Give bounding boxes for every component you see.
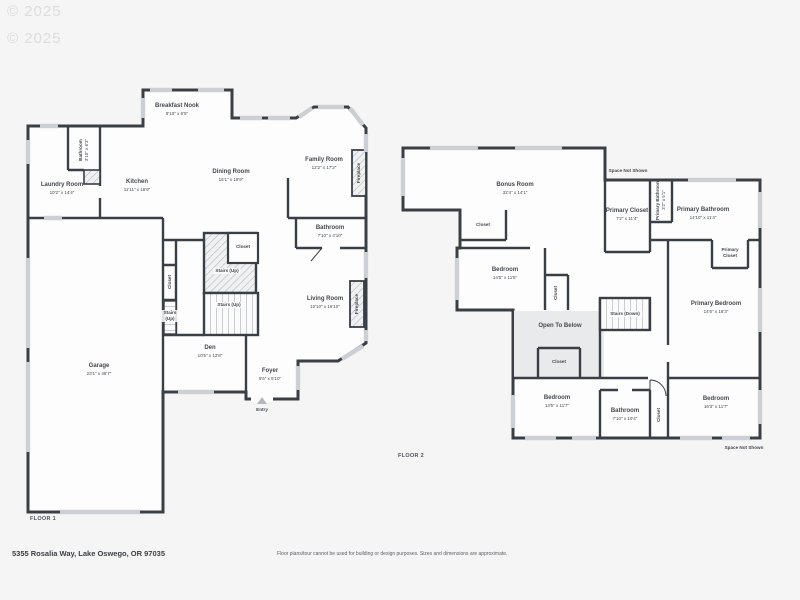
room-label-fireplace-living: Fireplace <box>354 294 360 314</box>
room-label-closet-mid: Closet <box>553 286 559 300</box>
room-label-entry: Entry <box>256 407 268 413</box>
room-label-primary-bathroom-small: Primary Bathroom3'2" x 5'1" <box>655 180 667 220</box>
room-label-primary-bedroom: Primary Bedroom14'6" x 18'3" <box>691 301 741 315</box>
room-label-bathroom-f1: Bathroom7'10" x 4'10" <box>316 225 344 239</box>
label-stairs-down: Stairs (Down) <box>608 311 642 317</box>
floor1-title: FLOOR 1 <box>30 516 56 522</box>
room-label-stairs-up-a: Stairs (Up) <box>213 268 240 274</box>
room-label-garage: Garage23'1" x 46'7" <box>87 363 112 377</box>
room-label-foyer: Foyer6'6" x 5'10" <box>259 368 281 382</box>
room-label-family: Family Room12'2" x 17'2" <box>305 157 343 171</box>
room-label-primary-closet-small: Primary Closet <box>717 247 743 259</box>
room-label-closet-stairs: Closet <box>236 244 250 250</box>
label-open-to-below: Open To Below <box>538 323 581 331</box>
room-label-stairs-up-left: Stairs (Up) <box>160 310 180 322</box>
room-label-bedroom-mid: Bedroom14'5" x 11'5" <box>492 267 518 281</box>
room-label-closet-bottom: Closet <box>656 408 662 422</box>
room-label-closet-left: Closet <box>167 275 173 289</box>
room-label-kitchen: Kitchen11'11" x 16'9" <box>124 179 151 193</box>
room-label-fireplace-family: Fireplace <box>356 163 362 183</box>
floor2-title: FLOOR 2 <box>398 453 424 459</box>
room-label-primary-closet: Primary Closet7'2" x 11'4" <box>606 208 648 222</box>
room-label-laundry: Laundry Room10'2" x 14'4" <box>41 182 83 196</box>
room-label-dining: Dining Room16'1" x 18'9" <box>212 169 249 183</box>
floor-plan-drawing <box>0 0 800 600</box>
room-label-den: Den10'6" x 12'8" <box>198 345 223 359</box>
label-space-not-shown-bottom: Space Not Shown <box>725 445 764 451</box>
property-address: 5355 Rosalia Way, Lake Oswego, OR 97035 <box>12 549 165 558</box>
room-label-stairs-up-b: Stairs (Up) <box>215 302 242 308</box>
room-label-primary-bathroom: Primary Bathroom14'10" x 11'4" <box>677 207 729 221</box>
room-label-bedroom-bl: Bedroom13'5" x 11'7" <box>544 395 570 409</box>
room-label-bathroom-small: Bathroom3'10" x 6'3" <box>78 139 90 161</box>
room-label-closet-open: Closet <box>552 359 566 365</box>
room-label-living: Living Room10'10" x 16'10" <box>307 296 343 310</box>
entry-direction-icon <box>251 395 273 404</box>
room-label-breakfast-nook: Breakfast Nook8'10" x 6'9" <box>155 103 199 117</box>
disclaimer-text: Floor plans/tour cannot be used for buil… <box>277 551 507 557</box>
room-label-bonus: Bonus Room32'4" x 14'1" <box>496 182 533 196</box>
label-space-not-shown-top: Space Not Shown <box>609 168 648 174</box>
room-label-bedroom-br: Bedroom16'3" x 11'7" <box>703 396 729 410</box>
room-label-closet-bonus: Closet <box>476 222 490 228</box>
room-label-bathroom-f2: Bathroom7'10" x 10'4" <box>611 408 639 422</box>
open-to-below-shade <box>514 311 604 377</box>
floor-plan-page: © 2025 © 2025 <box>0 0 800 600</box>
